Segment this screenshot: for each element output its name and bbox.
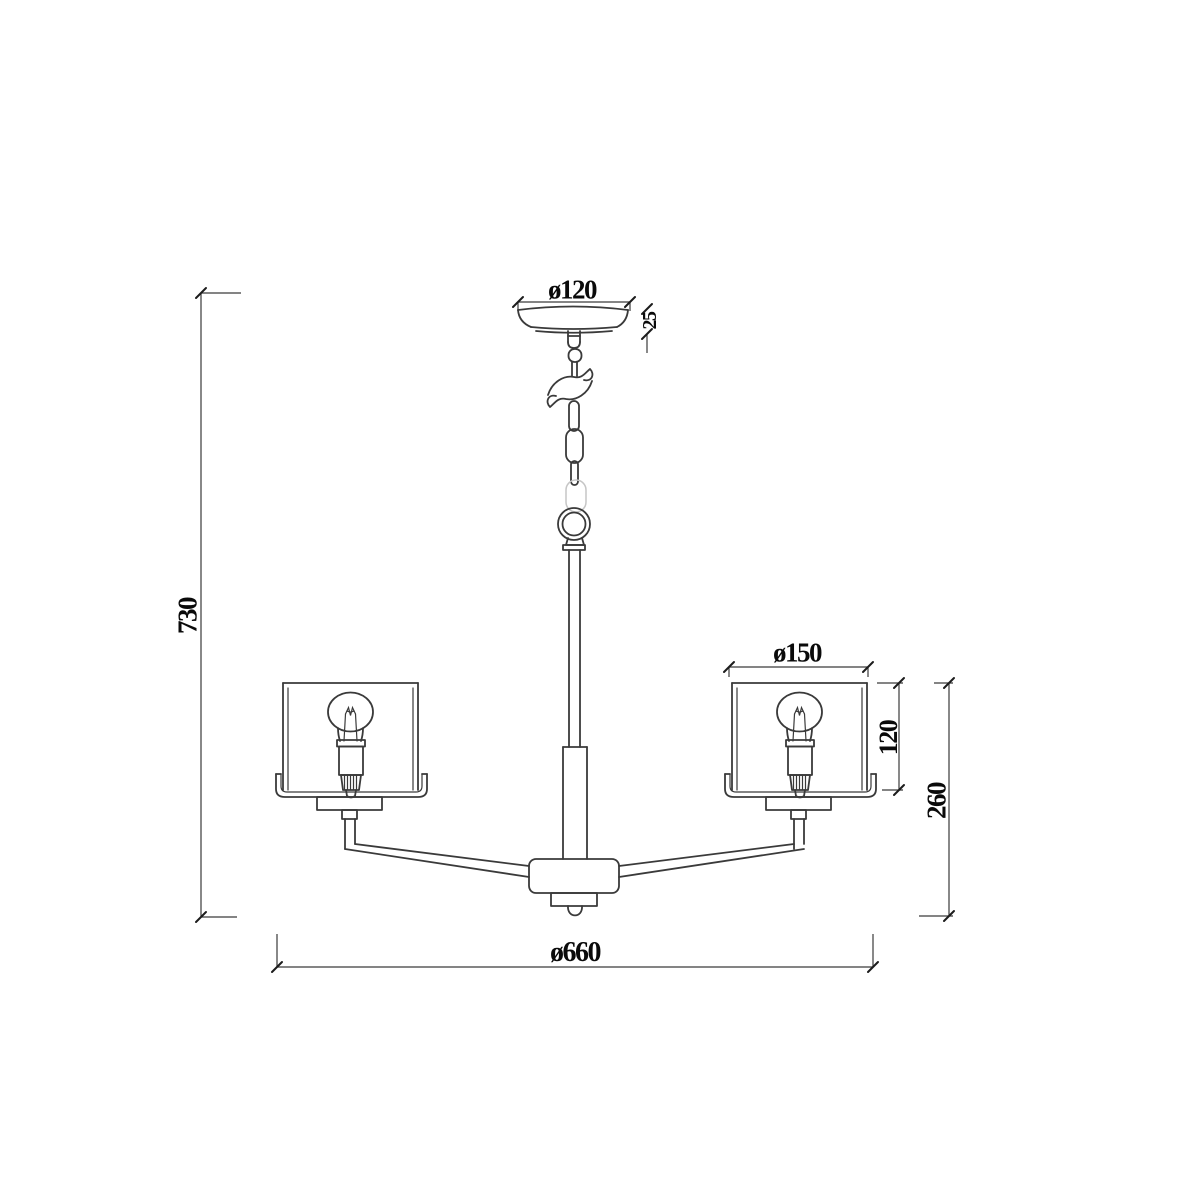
bulb-filament: [344, 708, 357, 742]
ceiling-canopy: [518, 307, 628, 333]
dim-overall-height: [196, 288, 241, 922]
label-overall-height: 730: [175, 598, 202, 634]
right-arm: [619, 844, 804, 877]
label-canopy-height: 25: [640, 313, 660, 330]
right-shade-assembly: [725, 683, 876, 849]
light-bulb: [328, 693, 373, 798]
left-arm: [345, 844, 529, 877]
shade-bracket: [276, 774, 427, 797]
bottom-finial: [568, 906, 582, 915]
shade-glass: [283, 683, 418, 790]
suspension-ring: [558, 508, 590, 550]
center-rod: [563, 550, 587, 859]
label-body-drop: 260: [924, 783, 951, 819]
shade-mount: [317, 797, 382, 849]
left-shade-assembly: [276, 683, 427, 849]
label-fixture-diameter: ø660: [550, 939, 600, 967]
label-shade-diameter: ø150: [773, 640, 821, 667]
hanging-chain: [548, 349, 593, 512]
label-shade-height: 120: [876, 721, 902, 756]
center-hub: [529, 859, 619, 915]
label-canopy-diameter: ø120: [548, 277, 596, 304]
bulb-thread: [341, 775, 361, 798]
bulb-socket: [339, 747, 363, 776]
chandelier-dimension-drawing: ø120 25 730 ø150 120 260 ø660: [0, 0, 1200, 1200]
dimension-lines: [196, 288, 954, 972]
chain-break-symbol: [548, 369, 593, 407]
